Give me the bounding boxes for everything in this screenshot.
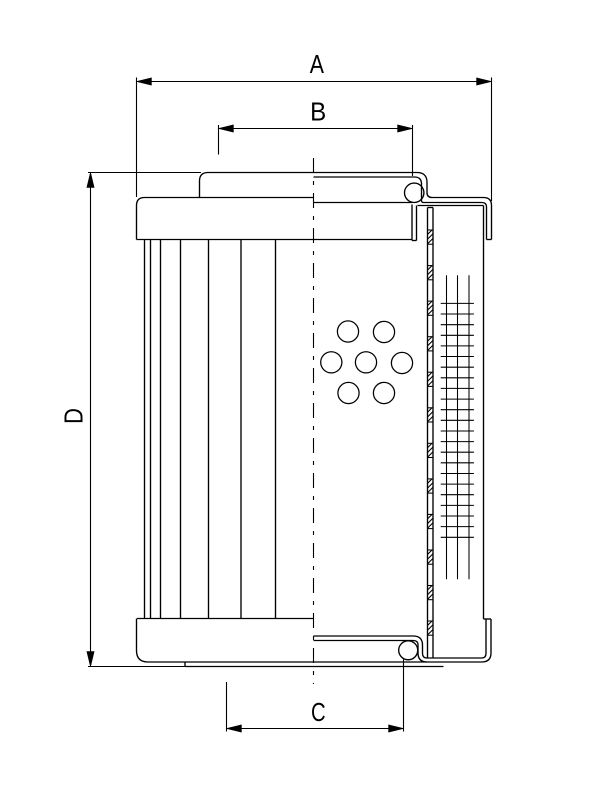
svg-text:D: D (60, 408, 89, 424)
svg-text:B: B (310, 98, 326, 127)
svg-text:C: C (311, 698, 326, 727)
svg-text:A: A (310, 50, 324, 80)
